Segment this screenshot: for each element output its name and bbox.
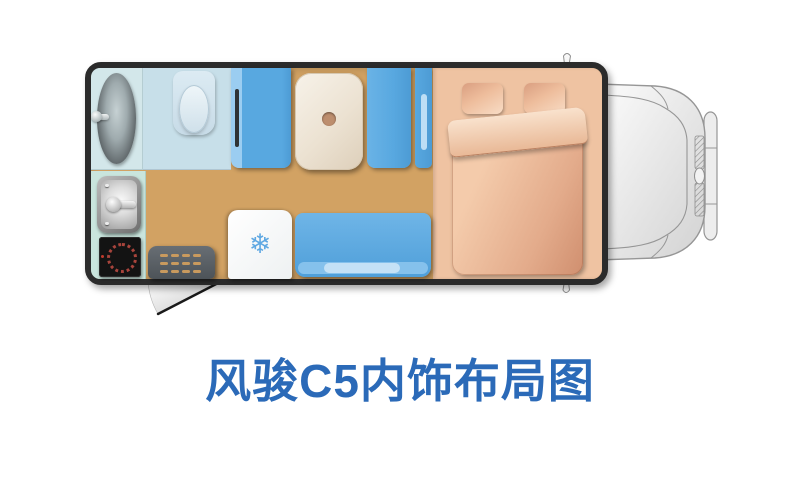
table-pedestal-dot xyxy=(322,112,336,126)
cab-bumper xyxy=(704,112,717,240)
kitchen-block xyxy=(91,171,146,279)
stove-burner-ring-icon xyxy=(107,243,137,273)
cab-logo-icon xyxy=(695,168,705,184)
shower-room xyxy=(91,68,143,170)
snowflake-icon: ❄ xyxy=(249,231,272,258)
fridge: ❄ xyxy=(228,210,292,279)
mat-tread-dashes xyxy=(160,254,168,257)
bedside-seat xyxy=(415,68,432,168)
kitchen-stove xyxy=(99,237,141,277)
cab-grille-lower xyxy=(695,183,704,216)
toilet-room xyxy=(143,68,231,170)
sofa-bench xyxy=(295,213,431,277)
shower-handle-knob xyxy=(91,111,102,122)
cab-body xyxy=(597,84,705,260)
dinette-seat xyxy=(367,68,411,168)
seat-backrest-stripe xyxy=(421,94,427,150)
sink-fitting-dot xyxy=(105,222,109,225)
dinette-table xyxy=(295,73,363,170)
stove-knob-dot xyxy=(101,255,104,258)
bed-duvet xyxy=(452,125,583,275)
bedroom-area xyxy=(433,68,602,279)
duvet-fold-flap xyxy=(447,107,588,158)
sink-fitting-dot xyxy=(105,184,109,187)
rv-floorplan-body: ❄ xyxy=(85,62,608,285)
wardrobe-divider-line xyxy=(235,89,239,147)
fengjun-c5-layout-diagram: ❄ 风骏C5内饰布局图 xyxy=(0,0,800,483)
cab-grille-upper xyxy=(695,136,704,169)
bench-cushion-pill xyxy=(324,263,400,273)
page-title: 风骏C5内饰布局图 xyxy=(0,345,800,411)
entry-step-mat xyxy=(148,246,215,279)
entry-door-swing xyxy=(140,280,232,320)
kitchen-sink xyxy=(97,176,141,233)
pillow-left xyxy=(462,83,503,114)
faucet-knob-icon xyxy=(106,197,121,212)
wardrobe-cabinet xyxy=(231,68,291,168)
toilet-bowl xyxy=(179,85,209,133)
